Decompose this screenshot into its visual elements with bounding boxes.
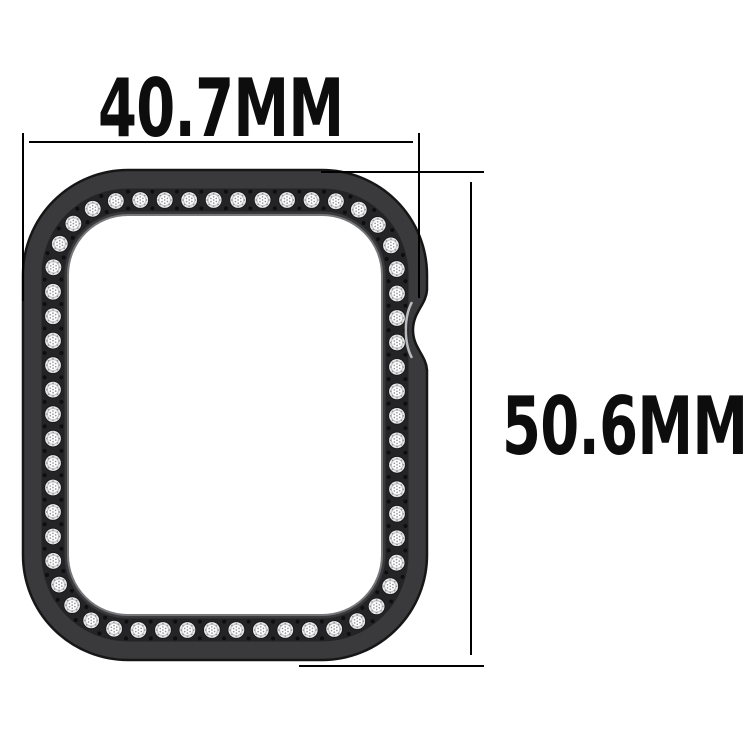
channel-dot bbox=[390, 228, 394, 232]
channel-dot bbox=[387, 548, 391, 552]
channel-dot bbox=[271, 636, 275, 640]
channel-dot bbox=[343, 210, 347, 214]
rhinestone bbox=[388, 481, 406, 499]
channel-dot bbox=[84, 605, 88, 609]
rhinestone bbox=[301, 621, 319, 639]
channel-dot bbox=[296, 636, 300, 640]
channel-dot bbox=[222, 636, 226, 640]
rhinestone bbox=[388, 505, 406, 523]
channel-dot bbox=[320, 636, 324, 640]
channel-dot bbox=[248, 190, 252, 194]
channel-dot bbox=[222, 620, 226, 624]
rhinestone bbox=[44, 503, 62, 521]
rhinestone bbox=[205, 191, 223, 209]
rhinestone bbox=[327, 192, 345, 210]
height-measurement-label: 50.6MM bbox=[502, 387, 747, 467]
channel-dot bbox=[389, 600, 393, 604]
channel-dot bbox=[59, 473, 63, 477]
rhinestone bbox=[44, 307, 62, 325]
channel-dot bbox=[43, 375, 47, 379]
channel-dot bbox=[273, 206, 277, 210]
channel-dot bbox=[360, 606, 364, 610]
channel-dot bbox=[387, 377, 391, 381]
channel-dot bbox=[43, 449, 47, 453]
channel-dot bbox=[126, 206, 130, 210]
channel-dot bbox=[401, 253, 405, 257]
channel-dot bbox=[387, 524, 391, 528]
rhinestone bbox=[44, 552, 62, 570]
channel-dot bbox=[199, 190, 203, 194]
channel-dot bbox=[387, 328, 391, 332]
rhinestone bbox=[388, 529, 406, 547]
channel-dot bbox=[43, 522, 47, 526]
channel-dot bbox=[403, 279, 407, 283]
rhinestone bbox=[325, 620, 343, 638]
rhinestone bbox=[44, 479, 62, 497]
channel-dot bbox=[70, 589, 74, 593]
channel-dot bbox=[387, 475, 391, 479]
channel-dot bbox=[43, 400, 47, 404]
rhinestone bbox=[350, 201, 368, 219]
channel-dot bbox=[103, 616, 107, 620]
rhinestone bbox=[82, 612, 100, 630]
rhinestone bbox=[382, 237, 400, 255]
channel-dot bbox=[362, 221, 366, 225]
rhinestone bbox=[45, 259, 63, 277]
rhinestone bbox=[156, 191, 174, 209]
rhinestone bbox=[369, 216, 387, 234]
channel-dot bbox=[105, 210, 109, 214]
rhinestone bbox=[179, 621, 197, 639]
channel-dot bbox=[296, 620, 300, 624]
channel-dot bbox=[403, 353, 407, 357]
channel-dot bbox=[150, 206, 154, 210]
rhinestone bbox=[388, 285, 406, 303]
channel-dot bbox=[173, 636, 177, 640]
channel-dot bbox=[56, 598, 60, 602]
rhinestone bbox=[303, 191, 321, 209]
channel-dot bbox=[387, 451, 391, 455]
channel-dot bbox=[320, 620, 324, 624]
channel-dot bbox=[224, 206, 228, 210]
rhinestone bbox=[388, 260, 406, 278]
channel-dot bbox=[173, 620, 177, 624]
width-measurement-label: 40.7MM bbox=[98, 69, 343, 149]
rhinestone bbox=[131, 191, 149, 209]
channel-dot bbox=[124, 620, 128, 624]
rhinestone bbox=[228, 621, 246, 639]
channel-dot bbox=[43, 473, 47, 477]
rhinestone bbox=[388, 456, 406, 474]
channel-dot bbox=[59, 498, 63, 502]
channel-dot bbox=[322, 206, 326, 210]
rhinestone bbox=[278, 191, 296, 209]
channel-dot bbox=[387, 353, 391, 357]
channel-dot bbox=[59, 547, 63, 551]
channel-dot bbox=[46, 251, 50, 255]
channel-dot bbox=[149, 620, 153, 624]
rhinestone bbox=[154, 621, 172, 639]
rhinestone bbox=[105, 620, 123, 638]
channel-dot bbox=[61, 569, 65, 573]
channel-dot bbox=[247, 636, 251, 640]
channel-dot bbox=[62, 255, 66, 259]
channel-dot bbox=[59, 522, 63, 526]
product-dimension-image: 40.7MM 50.6MM bbox=[0, 0, 750, 750]
rhinestone bbox=[44, 405, 62, 423]
channel-dot bbox=[43, 424, 47, 428]
channel-dot bbox=[59, 326, 63, 330]
channel-dot bbox=[371, 619, 375, 623]
channel-dot bbox=[322, 190, 326, 194]
channel-dot bbox=[59, 400, 63, 404]
channel-dot bbox=[43, 547, 47, 551]
rhinestone bbox=[388, 554, 406, 572]
channel-dot bbox=[387, 426, 391, 430]
channel-dot bbox=[224, 190, 228, 194]
rhinestone bbox=[44, 356, 62, 374]
channel-dot bbox=[59, 424, 63, 428]
rhinestone bbox=[276, 621, 294, 639]
channel-dot bbox=[297, 190, 301, 194]
channel-dot bbox=[372, 208, 376, 212]
channel-dot bbox=[86, 220, 90, 224]
channel-dot bbox=[247, 620, 251, 624]
channel-dot bbox=[175, 190, 179, 194]
channel-dot bbox=[74, 618, 78, 622]
channel-dot bbox=[375, 590, 379, 594]
channel-dot bbox=[403, 548, 407, 552]
rhinestone bbox=[229, 191, 247, 209]
rhinestone bbox=[130, 621, 148, 639]
channel-dot bbox=[248, 206, 252, 210]
channel-dot bbox=[403, 377, 407, 381]
channel-dot bbox=[198, 636, 202, 640]
rhinestone bbox=[388, 383, 406, 401]
channel-dot bbox=[59, 375, 63, 379]
channel-dot bbox=[45, 573, 49, 577]
channel-dot bbox=[400, 575, 404, 579]
rhinestone bbox=[180, 191, 198, 209]
channel-dot bbox=[376, 237, 380, 241]
channel-dot bbox=[124, 636, 128, 640]
rhinestone bbox=[388, 407, 406, 425]
screen-opening bbox=[68, 215, 382, 615]
channel-dot bbox=[59, 449, 63, 453]
rhinestone bbox=[381, 577, 399, 595]
channel-dot bbox=[175, 206, 179, 210]
rhinestone bbox=[84, 200, 102, 218]
channel-dot bbox=[99, 194, 103, 198]
channel-dot bbox=[403, 475, 407, 479]
channel-dot bbox=[59, 351, 63, 355]
rhinestone bbox=[368, 598, 386, 616]
rhinestone bbox=[203, 621, 221, 639]
channel-dot bbox=[403, 304, 407, 308]
rhinestone bbox=[50, 576, 68, 594]
channel-dot bbox=[149, 636, 153, 640]
channel-dot bbox=[150, 190, 154, 194]
channel-dot bbox=[271, 620, 275, 624]
rhinestone bbox=[51, 235, 69, 253]
channel-dot bbox=[403, 426, 407, 430]
channel-dot bbox=[384, 571, 388, 575]
channel-dot bbox=[297, 206, 301, 210]
channel-dot bbox=[403, 451, 407, 455]
rhinestone bbox=[388, 432, 406, 450]
rhinestone bbox=[65, 215, 83, 233]
channel-dot bbox=[387, 402, 391, 406]
rhinestone bbox=[388, 334, 406, 352]
rhinestone bbox=[254, 191, 272, 209]
rhinestone bbox=[44, 430, 62, 448]
channel-dot bbox=[43, 302, 47, 306]
channel-dot bbox=[387, 279, 391, 283]
channel-dot bbox=[349, 195, 353, 199]
rhinestone bbox=[44, 283, 62, 301]
rhinestone bbox=[252, 621, 270, 639]
channel-dot bbox=[387, 500, 391, 504]
channel-dot bbox=[273, 190, 277, 194]
channel-dot bbox=[347, 632, 351, 636]
rhinestone bbox=[44, 381, 62, 399]
channel-dot bbox=[403, 402, 407, 406]
rhinestone bbox=[388, 358, 406, 376]
channel-dot bbox=[126, 190, 130, 194]
channel-dot bbox=[75, 207, 79, 211]
rhinestone bbox=[388, 309, 406, 327]
rhinestone bbox=[107, 192, 125, 210]
channel-dot bbox=[199, 206, 203, 210]
channel-dot bbox=[403, 500, 407, 504]
channel-dot bbox=[57, 226, 61, 230]
channel-dot bbox=[71, 236, 75, 240]
channel-dot bbox=[59, 278, 63, 282]
channel-dot bbox=[385, 257, 389, 261]
channel-dot bbox=[59, 302, 63, 306]
channel-dot bbox=[43, 351, 47, 355]
channel-dot bbox=[403, 524, 407, 528]
channel-dot bbox=[198, 620, 202, 624]
channel-dot bbox=[97, 631, 101, 635]
rhinestone bbox=[44, 528, 62, 546]
channel-dot bbox=[341, 616, 345, 620]
rhinestone bbox=[348, 612, 366, 630]
rhinestone bbox=[44, 332, 62, 350]
channel-dot bbox=[387, 304, 391, 308]
rhinestone bbox=[44, 454, 62, 472]
channel-dot bbox=[43, 498, 47, 502]
channel-dot bbox=[43, 326, 47, 330]
channel-dot bbox=[43, 278, 47, 282]
rhinestone bbox=[63, 596, 81, 614]
